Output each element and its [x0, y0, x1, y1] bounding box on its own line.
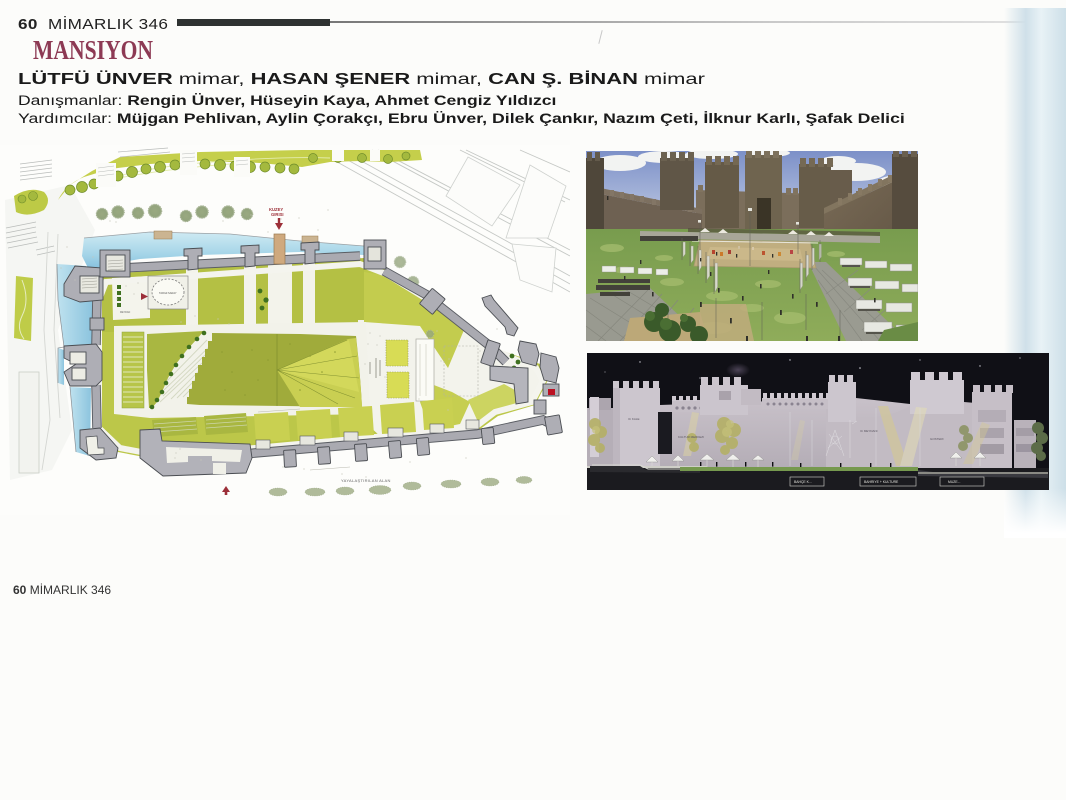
- svg-text:GIRISI: GIRISI: [271, 212, 284, 217]
- svg-text:MUZE...: MUZE...: [948, 480, 960, 484]
- svg-text:YAYALAŞTIRILAN ALAN: YAYALAŞTIRILAN ALAN: [341, 478, 391, 483]
- svg-text:IC KALE: IC KALE: [628, 417, 640, 421]
- svg-text:BAHÇE K...: BAHÇE K...: [794, 480, 812, 484]
- svg-text:BAHRIYE + KULTURE: BAHRIYE + KULTURE: [864, 480, 899, 484]
- svg-text:MEYDAN: MEYDAN: [120, 311, 131, 314]
- svg-text:GOSTERI: GOSTERI: [930, 437, 944, 441]
- svg-text:KULTUR MERKEZI: KULTUR MERKEZI: [678, 435, 704, 439]
- svg-text:TARIHI SARAY: TARIHI SARAY: [159, 291, 177, 295]
- svg-text:IC MEYDANI: IC MEYDANI: [860, 429, 878, 433]
